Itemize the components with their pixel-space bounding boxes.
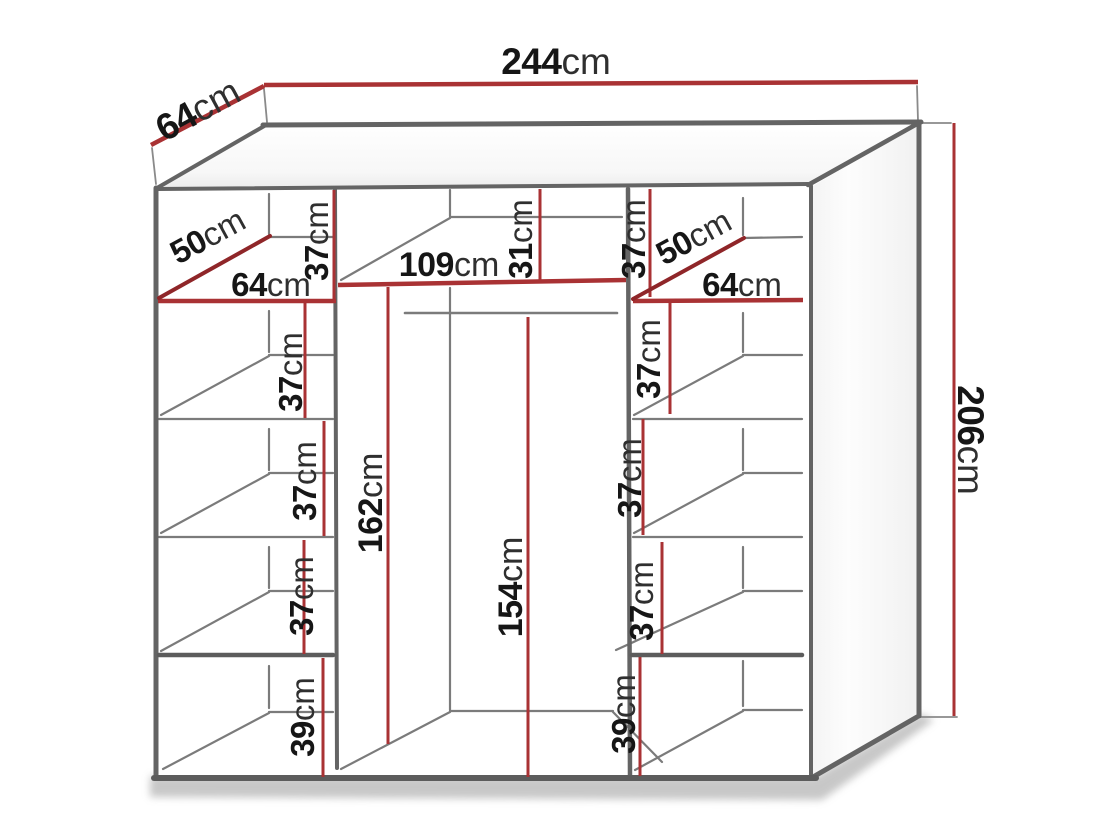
wardrobe-dimension-diagram: 244cm 64cm 206cm 50cm 50cm 64cm 64cm 109…	[0, 0, 1100, 825]
dim-total-width-label: 244cm	[501, 41, 611, 82]
dim-middle-width-label: 109cm	[399, 246, 500, 284]
dim-left-gap4-label: 37cm	[283, 556, 320, 636]
dim-total-height-label: 206cm	[950, 385, 991, 495]
dim-right-bottom-gap-label: 39cm	[605, 674, 642, 754]
diagram-canvas: 244cm 64cm 206cm 50cm 50cm 64cm 64cm 109…	[0, 0, 1100, 825]
dim-left-gap2-label: 37cm	[272, 332, 309, 412]
dim-line-total-width	[264, 82, 918, 85]
top-face	[157, 122, 919, 189]
dim-middle-top-gap-label: 31cm	[502, 199, 539, 279]
dim-right-gap1-label: 37cm	[615, 199, 652, 279]
dim-depth-label: 64cm	[149, 70, 247, 149]
dim-rail-height-label: 154cm	[492, 537, 530, 638]
dim-left-gap1-label: 37cm	[298, 201, 335, 281]
dim-right-gap3-label: 37cm	[611, 438, 648, 518]
cabinet-faces	[150, 122, 934, 800]
dim-left-gap3-label: 37cm	[286, 441, 323, 521]
dim-right-gap4-label: 37cm	[623, 561, 660, 641]
dim-right-gap2-label: 37cm	[630, 319, 667, 399]
dim-right-width-label: 64cm	[702, 266, 782, 303]
top-back-edge	[263, 122, 921, 125]
right-side-face	[811, 124, 919, 777]
dim-middle-height-label: 162cm	[352, 453, 390, 554]
dim-left-bottom-gap-label: 39cm	[284, 677, 321, 757]
